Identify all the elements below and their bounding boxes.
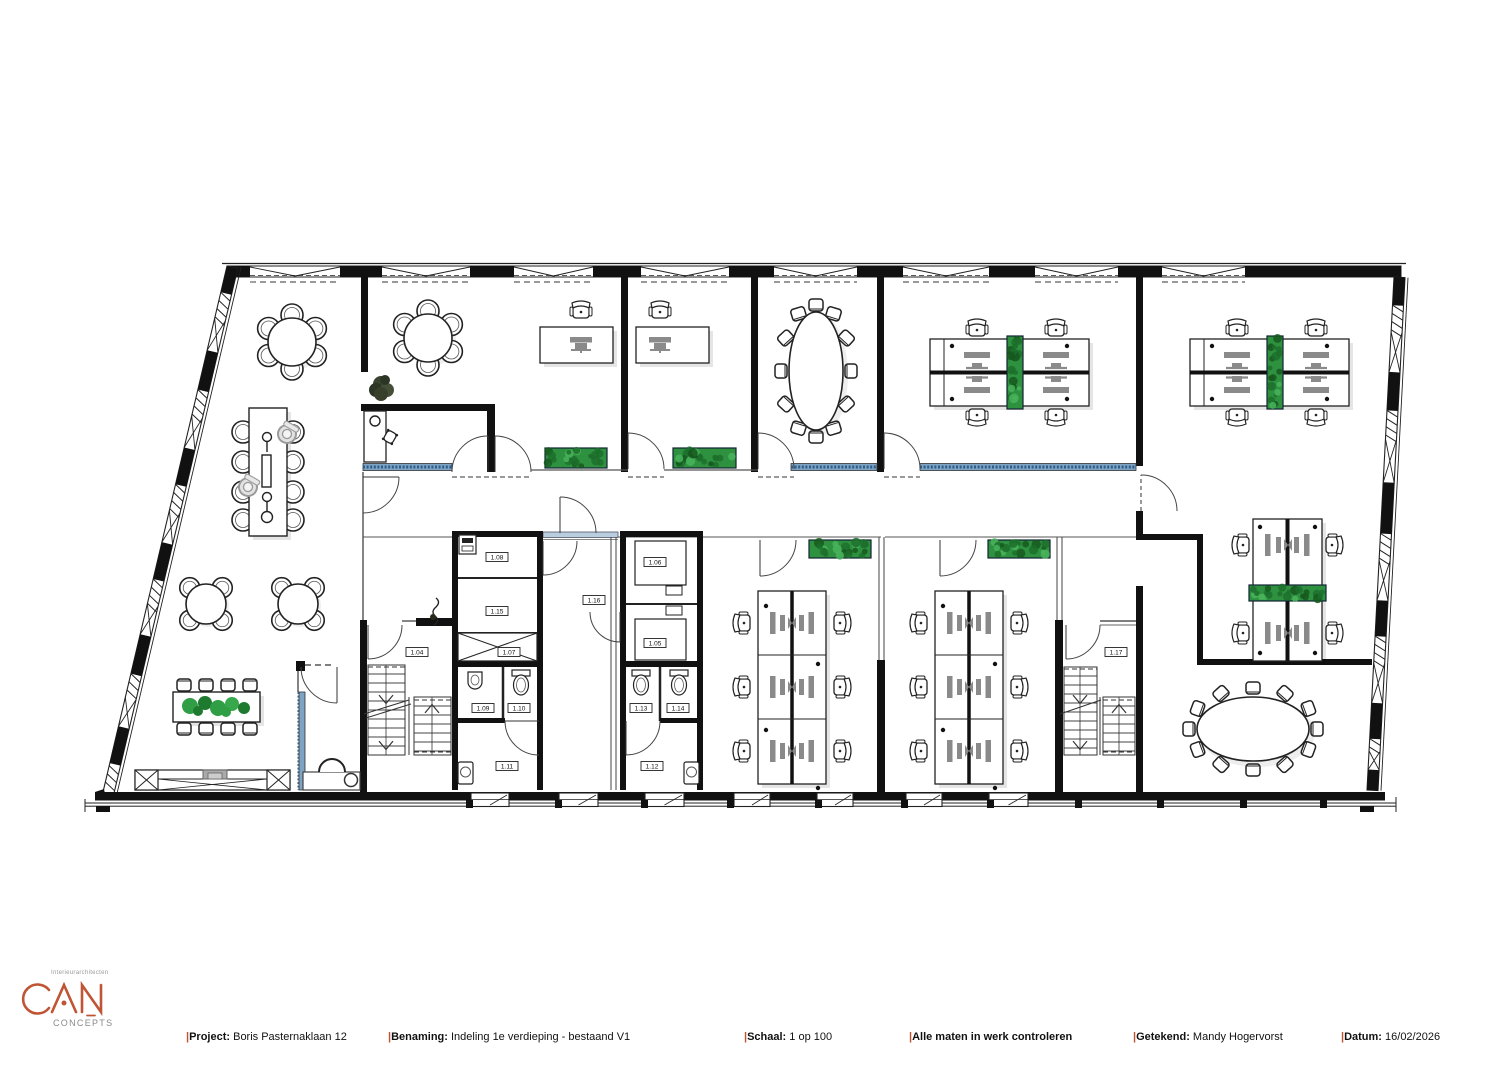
svg-text:|Getekend: Mandy Hogervorst: |Getekend: Mandy Hogervorst	[1133, 1031, 1283, 1043]
svg-text:1.07: 1.07	[503, 650, 516, 657]
svg-text:|Schaal: 1 op 100: |Schaal: 1 op 100	[744, 1031, 832, 1043]
svg-text:CONCEPTS: CONCEPTS	[53, 1018, 113, 1028]
svg-text:1.15: 1.15	[491, 609, 504, 616]
svg-text:1.05: 1.05	[649, 641, 662, 648]
svg-text:1.04: 1.04	[411, 650, 424, 657]
svg-text:1.13: 1.13	[635, 706, 648, 713]
svg-text:1.12: 1.12	[646, 764, 659, 771]
svg-text:1.09: 1.09	[477, 706, 490, 713]
svg-text:1.08: 1.08	[491, 555, 504, 562]
svg-text:1.17: 1.17	[1110, 650, 1123, 657]
svg-text:1.14: 1.14	[672, 706, 685, 713]
svg-text:1.11: 1.11	[501, 764, 514, 771]
svg-text:|Project: Boris Pasternaklaan: |Project: Boris Pasternaklaan 12	[186, 1031, 347, 1043]
svg-text:1.10: 1.10	[513, 706, 526, 713]
svg-text:1.06: 1.06	[649, 560, 662, 567]
svg-text:|Datum: 16/02/2026: |Datum: 16/02/2026	[1341, 1031, 1440, 1043]
svg-text:|Alle maten in werk controlere: |Alle maten in werk controleren	[909, 1031, 1073, 1043]
svg-text:1.16: 1.16	[588, 598, 601, 605]
svg-text:|Benaming: Indeling 1e verdiep: |Benaming: Indeling 1e verdieping - best…	[388, 1031, 630, 1043]
svg-text:Interieurarchitecten: Interieurarchitecten	[51, 970, 108, 976]
